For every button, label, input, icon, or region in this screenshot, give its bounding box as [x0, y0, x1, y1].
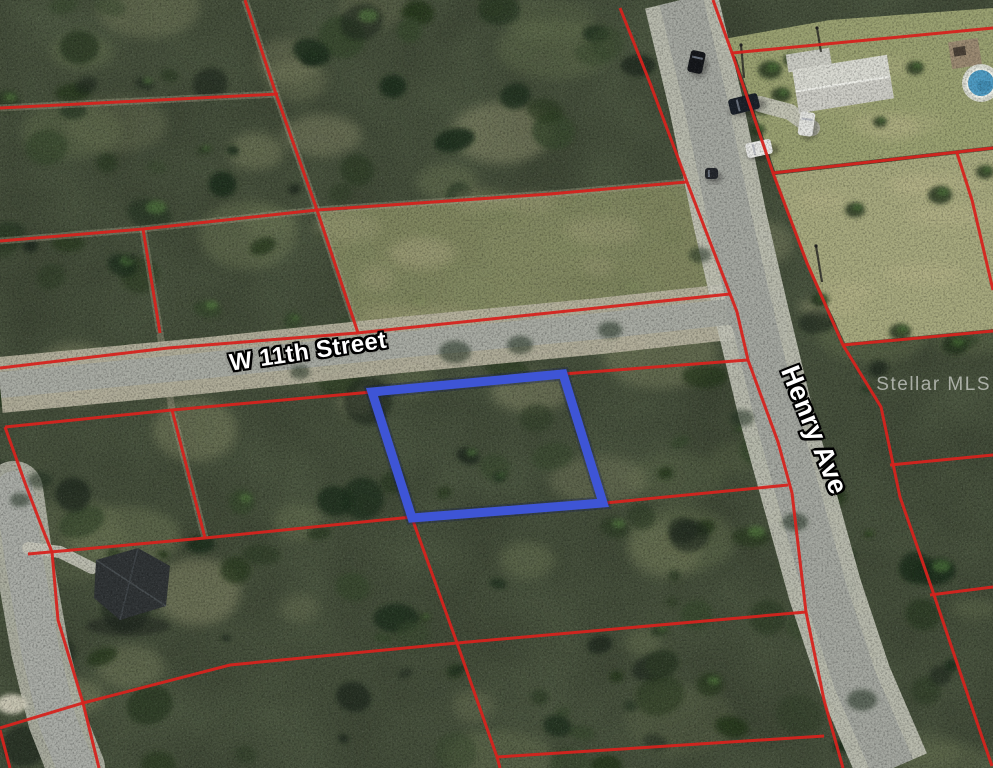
mls-watermark: Stellar MLS	[876, 374, 991, 396]
aerial-map: W 11th Street Henry Ave Stellar MLS	[0, 0, 993, 768]
satellite-canvas	[0, 0, 993, 768]
